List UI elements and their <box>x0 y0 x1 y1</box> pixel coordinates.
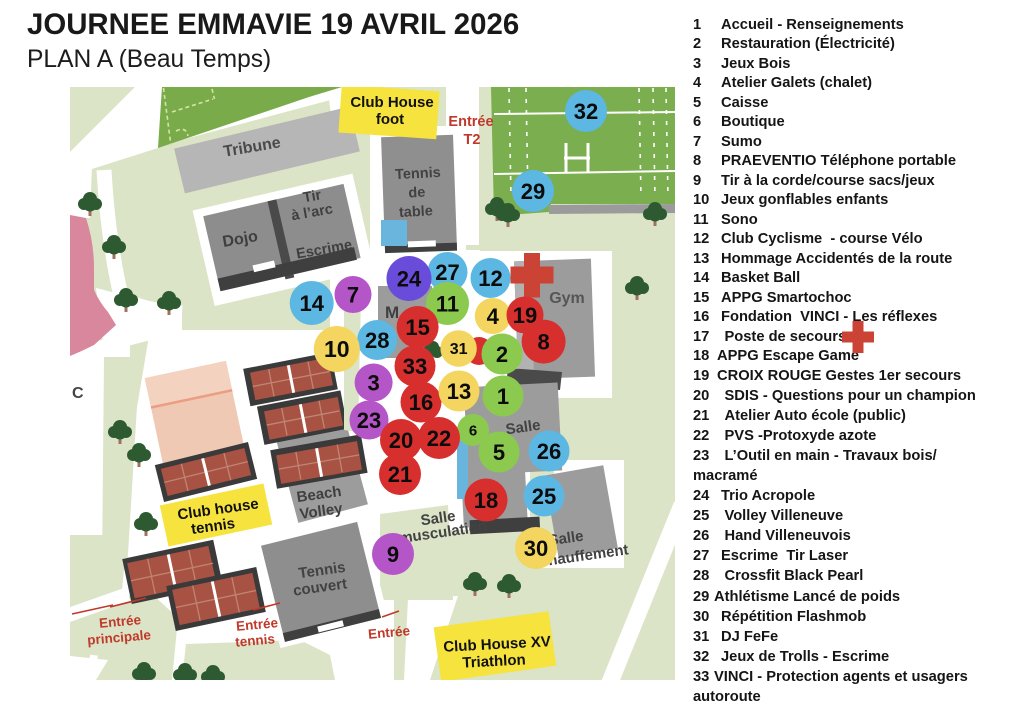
svg-text:11: 11 <box>436 291 459 316</box>
svg-text:15: 15 <box>405 315 429 340</box>
svg-text:28: 28 <box>365 328 389 353</box>
svg-text:23: 23 <box>357 408 381 433</box>
svg-text:22: 22 <box>427 426 451 451</box>
svg-text:16: 16 <box>409 390 433 415</box>
svg-text:Club House: Club House <box>350 94 433 111</box>
svg-text:12: 12 <box>478 266 502 291</box>
svg-text:26: 26 <box>537 439 561 464</box>
svg-text:5: 5 <box>493 440 505 465</box>
svg-text:30: 30 <box>524 536 548 561</box>
svg-text:33: 33 <box>403 354 427 379</box>
svg-text:18: 18 <box>474 488 498 513</box>
svg-text:14: 14 <box>299 291 324 316</box>
svg-text:M: M <box>385 303 399 322</box>
svg-text:Gym: Gym <box>549 290 585 307</box>
svg-text:31: 31 <box>450 341 468 358</box>
svg-text:6: 6 <box>469 422 477 439</box>
svg-text:Entrée: Entrée <box>448 114 493 130</box>
svg-text:de: de <box>408 185 426 202</box>
svg-text:27: 27 <box>435 260 459 285</box>
svg-text:C: C <box>72 385 84 402</box>
svg-text:T2: T2 <box>464 132 481 148</box>
svg-text:13: 13 <box>447 379 471 404</box>
svg-text:table: table <box>399 203 434 221</box>
svg-text:25: 25 <box>532 484 556 509</box>
svg-text:24: 24 <box>397 266 422 291</box>
svg-text:8: 8 <box>537 329 549 354</box>
svg-text:Tennis: Tennis <box>395 165 441 183</box>
svg-text:20: 20 <box>389 428 413 453</box>
svg-text:1: 1 <box>497 384 509 409</box>
svg-text:foot: foot <box>376 111 404 128</box>
svg-text:3: 3 <box>367 370 379 395</box>
svg-text:4: 4 <box>487 304 500 329</box>
svg-text:9: 9 <box>387 542 399 567</box>
svg-text:7: 7 <box>347 282 359 307</box>
svg-text:32: 32 <box>574 99 598 124</box>
svg-text:10: 10 <box>324 336 350 362</box>
svg-text:2: 2 <box>496 342 508 367</box>
svg-text:21: 21 <box>388 462 412 487</box>
svg-text:29: 29 <box>521 179 545 204</box>
svg-text:Triathlon: Triathlon <box>462 651 526 671</box>
